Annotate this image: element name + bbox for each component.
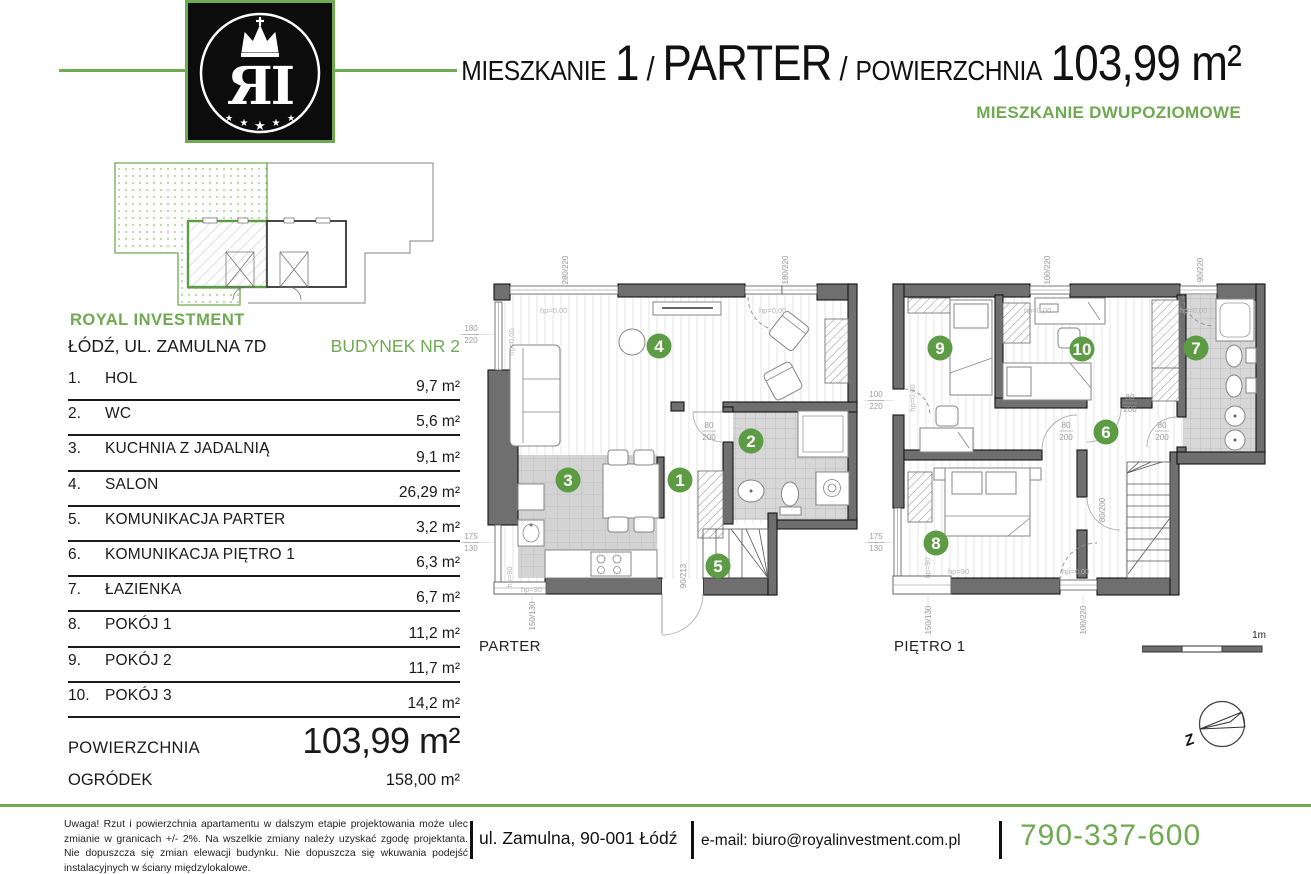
floorplan-sheet: ЯI ★ ★ ★ ★ ★ MIESZKANIE 1 / PARTER / POW… xyxy=(0,0,1311,874)
footer-divider xyxy=(470,821,473,859)
dim-label: 80 xyxy=(1158,421,1167,430)
dim-label: 150/130 xyxy=(528,601,537,630)
table-row: 1.HOL9,7 m² xyxy=(68,366,460,401)
room-name: SALON xyxy=(105,472,399,505)
table-row: 6.KOMUNIKACJA PIĘTRO 16,3 m² xyxy=(68,542,460,577)
wardrobe xyxy=(825,319,848,383)
header-rule-right xyxy=(335,69,457,72)
room-area: 5,6 m² xyxy=(416,413,460,434)
dim-label: 90/213 xyxy=(679,563,688,588)
room-marker-3: 3 xyxy=(556,468,581,493)
room-marker-7: 7 xyxy=(1184,336,1209,361)
dining-table xyxy=(603,464,659,518)
hp-label: hp=0,00 xyxy=(540,306,567,315)
parter-label: PARTER xyxy=(479,638,541,655)
dim-label: 100 xyxy=(869,390,883,399)
room-marker-9: 9 xyxy=(928,336,953,361)
pillow xyxy=(986,472,1016,494)
project-address: ŁÓDŹ, UL. ZAMULNA 7D xyxy=(68,336,266,357)
floorplan-pietro-drawing: 9 10 7 6 8 hp=0,00 hp=0,00 hp=0,00 hp=90… xyxy=(862,250,1285,642)
project-address-row: ŁÓDŹ, UL. ZAMULNA 7D BUDYNEK NR 2 xyxy=(68,336,460,357)
svg-text:4: 4 xyxy=(654,337,664,356)
dim-label: 180 xyxy=(464,324,478,333)
pillow xyxy=(954,304,988,328)
building-number: BUDYNEK NR 2 xyxy=(331,336,460,357)
dim-label: 200 xyxy=(1123,405,1137,414)
total-area-label: POWIERZCHNIA xyxy=(68,739,200,758)
toilet xyxy=(1226,375,1242,397)
room-name: KUCHNIA Z JADALNIĄ xyxy=(105,436,416,469)
footer-address: ul. Zamulna, 90-001 Łódź xyxy=(479,828,677,849)
room-no: 9. xyxy=(68,648,105,681)
shower xyxy=(798,411,848,457)
dim-label: 80 xyxy=(1062,421,1071,430)
hp-label: hp=90 xyxy=(505,566,514,587)
svg-text:7: 7 xyxy=(1191,339,1200,358)
svg-text:1: 1 xyxy=(675,471,684,490)
desk-chair xyxy=(936,406,958,426)
room-name: POKÓJ 3 xyxy=(105,683,407,716)
svg-text:3: 3 xyxy=(563,471,572,490)
room-marker-2: 2 xyxy=(739,429,764,454)
company-name: ROYAL INVESTMENT xyxy=(70,311,245,330)
subtitle-duplex: MIESZKANIE DWUPOZIOMOWE xyxy=(976,103,1241,123)
round-table xyxy=(619,329,645,355)
room-name: KOMUNIKACJA PIĘTRO 1 xyxy=(105,542,416,575)
garden-row: OGRÓDEK 158,00 m² xyxy=(68,771,460,790)
dim-label: 100/220 xyxy=(1079,605,1088,634)
room-no: 10. xyxy=(68,683,105,716)
chair xyxy=(634,517,654,532)
room-name: HOL xyxy=(105,366,416,399)
table-row: 9.POKÓJ 211,7 m² xyxy=(68,648,460,683)
cabinet xyxy=(518,484,544,510)
nightstand xyxy=(1030,468,1041,480)
room-no: 4. xyxy=(68,472,105,505)
hp-label: hp=0,00 xyxy=(908,384,917,411)
room-area: 11,2 m² xyxy=(409,625,460,646)
site-plan xyxy=(88,152,444,310)
dim-label: 180/220 xyxy=(781,255,790,284)
title-floor: PARTER xyxy=(663,34,832,92)
star-icon: ★ xyxy=(287,113,295,123)
room-no: 5. xyxy=(68,507,105,540)
table-row: 5.KOMUNIKACJA PARTER3,2 m² xyxy=(68,507,460,542)
compass-letter: Z xyxy=(1182,731,1198,751)
scale-bar: 1m xyxy=(1142,630,1268,658)
desk xyxy=(920,428,973,452)
room-no: 6. xyxy=(68,542,105,575)
room-no: 8. xyxy=(68,612,105,645)
room-marker-1: 1 xyxy=(668,468,693,493)
dim-label: 200 xyxy=(702,433,716,442)
title-word-powierzchnia: POWIERZCHNIA xyxy=(856,55,1042,87)
dim-label: 90/220 xyxy=(1196,257,1205,282)
star-icon: ★ xyxy=(272,118,281,129)
pietro-label: PIĘTRO 1 xyxy=(894,638,966,655)
pillow xyxy=(1007,367,1031,396)
room-name: POKÓJ 2 xyxy=(105,648,409,681)
garden-label: OGRÓDEK xyxy=(68,771,152,790)
svg-text:10: 10 xyxy=(1073,340,1092,359)
dim-label: 280/220 xyxy=(561,255,570,284)
chair xyxy=(634,450,654,465)
room-marker-4: 4 xyxy=(647,334,672,359)
room-area: 26,29 m² xyxy=(399,484,460,505)
table-row: 4.SALON26,29 m² xyxy=(68,472,460,507)
star-icon: ★ xyxy=(240,118,249,129)
hall-furniture xyxy=(698,471,723,538)
room-table: 1.HOL9,7 m² 2.WC5,6 m² 3.KUCHNIA Z JADAL… xyxy=(68,366,460,718)
svg-text:2: 2 xyxy=(746,432,755,451)
dim-label: 200 xyxy=(1059,433,1073,442)
chair xyxy=(608,450,628,465)
pillow xyxy=(952,472,982,494)
hall-wardrobe xyxy=(698,471,723,538)
room-area: 9,1 m² xyxy=(416,449,460,470)
svg-text:6: 6 xyxy=(1101,423,1110,442)
room-marker-8: 8 xyxy=(924,531,949,556)
hp-label: hp=0,00 xyxy=(759,306,786,315)
title-word-mieszkanie: MIESZKANIE xyxy=(461,55,606,87)
total-area-value: 103,99 m² xyxy=(302,720,460,762)
room-area: 6,7 m² xyxy=(416,589,460,610)
hp-label: hp=90 xyxy=(521,585,542,594)
room-marker-6: 6 xyxy=(1094,420,1119,445)
title-apartment-number: 1 xyxy=(615,34,639,92)
room-marker-10: 10 xyxy=(1070,337,1095,362)
dim-label: 200 xyxy=(1155,433,1169,442)
table-row: 10.POKÓJ 314,2 m² xyxy=(68,683,460,718)
hp-label: hp=90 xyxy=(948,567,969,576)
nightstand xyxy=(934,468,945,480)
company-logo: ЯI ★ ★ ★ ★ ★ xyxy=(185,0,335,143)
footer-divider xyxy=(999,821,1002,859)
toilet xyxy=(1226,345,1242,367)
svg-text:5: 5 xyxy=(713,557,722,576)
shelf xyxy=(908,298,950,313)
room-name: ŁAZIENKA xyxy=(105,577,416,610)
room-no: 3. xyxy=(68,436,105,469)
toilet xyxy=(782,482,799,506)
dim-label: 220 xyxy=(464,336,478,345)
dim-label: 175 xyxy=(464,532,478,541)
page-title: MIESZKANIE 1 / PARTER / POWIERZCHNIA 103… xyxy=(461,34,1241,92)
hp-label: hp=0,00 xyxy=(1062,567,1089,576)
dim-label: 80/200 xyxy=(1098,497,1107,522)
room-area: 6,3 m² xyxy=(416,554,460,575)
dim-label: 150/130 xyxy=(924,605,933,634)
disclaimer-text: Uwaga! Rzut i powierzchnia apartamentu w… xyxy=(64,818,468,874)
sofa xyxy=(510,345,560,446)
dim-label: 100/220 xyxy=(1043,255,1052,284)
scale-label: 1m xyxy=(1252,630,1266,641)
hp-label: hp=0,00 xyxy=(1024,306,1051,315)
wardrobe xyxy=(1152,300,1179,401)
dim-label: 80 xyxy=(705,421,714,430)
wardrobe xyxy=(908,472,932,522)
header-rule-left xyxy=(59,69,185,72)
table-row: 7.ŁAZIENKA6,7 m² xyxy=(68,577,460,612)
room-no: 7. xyxy=(68,577,105,610)
scale-bar-graphic xyxy=(1142,644,1268,658)
room-no: 1. xyxy=(68,366,105,399)
dim-label: 175 xyxy=(869,532,883,541)
washing-machine xyxy=(816,472,849,505)
dim-label: 220 xyxy=(869,402,883,411)
footer-phone: 790-337-600 xyxy=(1020,819,1201,853)
room-area: 14,2 m² xyxy=(407,695,460,716)
room-area: 11,7 m² xyxy=(409,660,460,681)
svg-text:8: 8 xyxy=(931,534,940,553)
room-marker-5: 5 xyxy=(706,554,731,579)
hp-label: hp=90 xyxy=(923,557,932,578)
logo-letters: ЯI xyxy=(227,56,293,117)
table-row: 8.POKÓJ 111,2 m² xyxy=(68,612,460,647)
footer-rule xyxy=(0,804,1311,807)
dim-label: 130 xyxy=(869,544,883,553)
dim-label: 130 xyxy=(464,544,478,553)
stove xyxy=(591,552,631,576)
table-row: 2.WC5,6 m² xyxy=(68,401,460,436)
svg-text:9: 9 xyxy=(935,339,944,358)
title-slash: / xyxy=(840,50,848,88)
footer-divider xyxy=(691,821,694,859)
garden-value: 158,00 m² xyxy=(386,771,460,790)
star-icon: ★ xyxy=(254,118,266,133)
total-area-row: POWIERZCHNIA 103,99 m² xyxy=(68,720,460,762)
compass-icon: Z xyxy=(1182,696,1262,760)
hp-label: hp=0,00 xyxy=(1180,306,1207,315)
title-total-area: 103,99 m² xyxy=(1051,34,1241,92)
room-name: WC xyxy=(105,401,416,434)
chair xyxy=(608,517,628,532)
room-name: POKÓJ 1 xyxy=(105,612,409,645)
room-name: KOMUNIKACJA PARTER xyxy=(105,507,416,540)
title-slash: / xyxy=(647,50,655,88)
room-area: 9,7 m² xyxy=(416,378,460,399)
star-icon: ★ xyxy=(225,113,233,123)
footer-email: e-mail: biuro@royalinvestment.com.pl xyxy=(701,832,961,850)
room-area: 3,2 m² xyxy=(416,519,460,540)
hp-label: hp=0,00 xyxy=(507,328,516,355)
dim-label: 80 xyxy=(1126,393,1135,402)
table-row: 3.KUCHNIA Z JADALNIĄ9,1 m² xyxy=(68,436,460,471)
room-no: 2. xyxy=(68,401,105,434)
floorplan-parter-drawing: 4 2 3 1 5 hp=0,00 hp=0,00 hp=0,00 hp=90 … xyxy=(457,250,872,642)
